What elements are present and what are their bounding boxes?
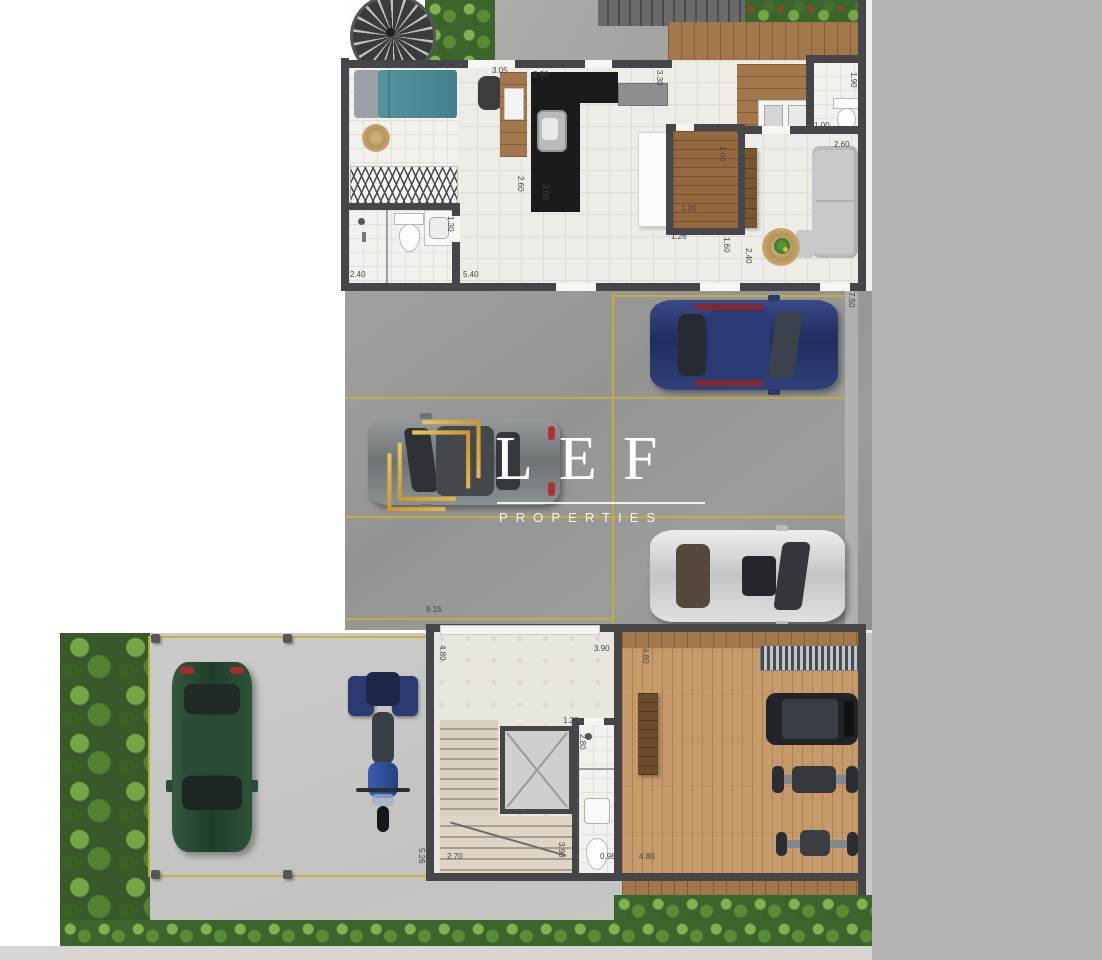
sink-basin [429, 217, 449, 239]
bollard-top-mid [283, 634, 292, 643]
car-silver-sunroof [742, 556, 776, 596]
shower-glass [386, 210, 388, 283]
hedge-top-right [745, 0, 858, 22]
bench-plate-left [772, 766, 784, 793]
car-blue-mirror-top [768, 295, 780, 301]
court-line-left [148, 636, 150, 877]
wall-small-bath-top [806, 55, 866, 63]
wall-closet-bottom [666, 228, 745, 235]
desk-papers [504, 88, 524, 120]
door-gap-living [762, 126, 790, 134]
kitchen-sink-basin [542, 118, 558, 140]
stairs-upper-flight [440, 720, 498, 816]
plant-pot [774, 238, 790, 254]
motorcycle-front-wheel [377, 806, 389, 832]
car-blue-windshield [767, 312, 802, 378]
window-gap-kitchen [585, 60, 612, 68]
white-margin-bottom-left [0, 630, 60, 946]
parking-line-right-mid1 [614, 397, 845, 399]
car-green-rear-glass [184, 684, 240, 714]
treadmill-belt [782, 699, 838, 739]
wall-lower-bath-left [572, 718, 579, 881]
kitchen-counter-top [580, 72, 618, 103]
gym-sideboard [638, 693, 658, 775]
door-gap-bottom-1 [556, 283, 596, 291]
watermark: LEF PROPERTIES [383, 414, 723, 534]
closet-floor [673, 131, 738, 228]
wall-small-bath-left [806, 55, 814, 133]
parking-line-left-mid1 [345, 397, 612, 399]
door-gap-bottom-3 [820, 283, 850, 291]
car-green [172, 662, 252, 852]
watermark-divider [497, 502, 705, 504]
treadmill-console [844, 701, 854, 737]
motorcycle-tank [368, 762, 398, 798]
machine-seat [800, 830, 830, 856]
garage-right-margin [845, 291, 858, 630]
wall-bottom-section [426, 873, 866, 881]
wall-living-top [737, 126, 866, 134]
bench-plate-right [846, 766, 858, 793]
spiral-staircase-center [386, 28, 395, 37]
shower-valve [362, 232, 366, 242]
laundry-sink [788, 105, 807, 128]
car-green-mirror-left [166, 780, 173, 792]
sliding-door-band [440, 625, 600, 635]
lef-logo-icon [383, 418, 487, 534]
watermark-brand: LEF [495, 428, 683, 490]
bed-fold-line [388, 70, 390, 118]
bed-pillows [354, 70, 380, 118]
car-blue-interior-accent-top [694, 304, 764, 310]
car-blue-interior-accent-bottom [694, 380, 764, 386]
car-blue-roof [708, 310, 770, 380]
motorcycle-windshield [372, 794, 394, 806]
sofa [812, 146, 858, 258]
parking-line-left-bottom [345, 618, 612, 620]
bedroom-rug [362, 124, 390, 152]
wall-closet-left [666, 124, 673, 235]
wall-bottom-right [858, 624, 866, 897]
washing-machine [764, 105, 783, 128]
car-blue-mirror-bottom [768, 389, 780, 395]
car-silver-mirror-top [776, 525, 788, 531]
car-green-taillight-left [180, 667, 194, 674]
motorcycle-seat [372, 712, 394, 764]
car-green-taillight-right [230, 667, 244, 674]
desk-chair [478, 76, 502, 110]
car-green-windshield [182, 776, 242, 810]
wall-bed-bath-divider [341, 203, 460, 210]
watermark-tagline: PROPERTIES [499, 510, 663, 525]
shower-head [358, 218, 365, 225]
kitchen-cabinet [618, 83, 668, 106]
wall-stairwell-gym-divider [614, 624, 622, 881]
car-silver-rear-interior [676, 544, 710, 608]
wall-bottom-outer [341, 283, 866, 291]
plant-fruit [783, 247, 788, 252]
window-gap-bedroom [468, 60, 515, 68]
wall-stairwell-left [426, 624, 434, 881]
machine-plate-left [776, 832, 787, 856]
floor-plan-canvas: LEF PROPERTIES [0, 0, 1102, 960]
motorcycle-topbox [366, 672, 400, 706]
car-silver [650, 530, 845, 622]
gym-machine [776, 822, 858, 866]
elevator [500, 726, 574, 814]
machine-plate-right [847, 832, 858, 856]
door-gap-closet [676, 124, 694, 131]
street-strip [872, 0, 1102, 960]
motorcycle [348, 672, 418, 832]
car-green-mirror-right [251, 780, 258, 792]
dumbbell-rack [760, 645, 860, 671]
car-blue-rear-glass [678, 314, 706, 376]
treadmill [766, 693, 858, 745]
car-silver-windshield [773, 542, 811, 610]
wall-closet-right [738, 124, 745, 235]
wall-gym-top [622, 624, 866, 632]
wall-right-outer [858, 0, 866, 291]
car-blue [650, 300, 838, 390]
clothes-rack [350, 166, 458, 206]
car-green-roof [182, 716, 242, 774]
elevator-x-mark [505, 731, 569, 809]
sidewalk [0, 946, 872, 960]
lower-sink [584, 798, 610, 824]
bench-pad [792, 766, 836, 793]
garden-strip-left [60, 633, 150, 928]
lower-shower-glass [579, 768, 614, 770]
wall-left-outer [341, 58, 349, 291]
weight-bench [772, 758, 858, 802]
sofa-cushion-divider [816, 200, 854, 202]
door-gap-bath [452, 216, 460, 242]
door-gap-lower-bath [584, 718, 604, 725]
motorcycle-handlebar [356, 788, 410, 792]
bollard-bottom-left [151, 870, 160, 879]
bollard-top-left [151, 634, 160, 643]
bollard-bottom-mid [283, 870, 292, 879]
door-gap-bottom-2 [700, 283, 740, 291]
parking-line-right-top [614, 295, 845, 297]
lower-shower-head [585, 733, 592, 740]
